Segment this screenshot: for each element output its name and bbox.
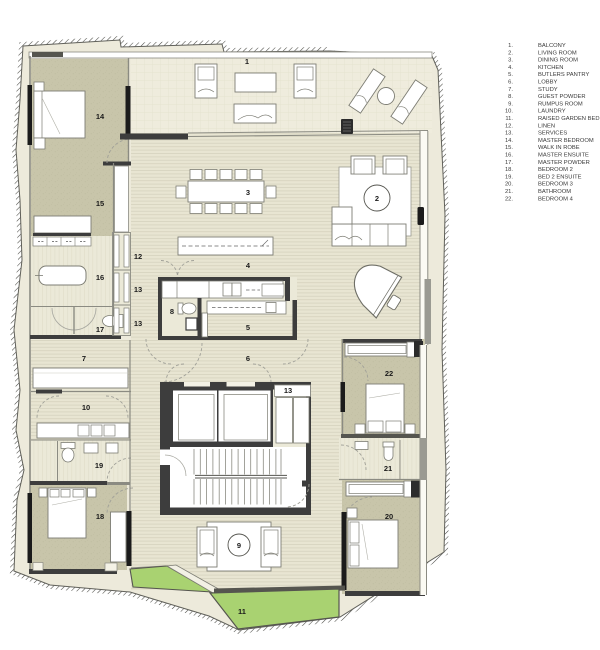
svg-text:13.: 13. [505, 131, 513, 137]
svg-text:17: 17 [96, 325, 104, 334]
svg-text:8.: 8. [508, 94, 513, 100]
svg-text:WALK IN ROBE: WALK IN ROBE [538, 145, 580, 151]
svg-text:4.: 4. [508, 65, 513, 71]
svg-text:SERVICES: SERVICES [538, 131, 567, 137]
svg-text:21: 21 [384, 464, 392, 473]
svg-text:LIVING ROOM: LIVING ROOM [538, 50, 577, 56]
svg-text:LINEN: LINEN [538, 123, 555, 129]
svg-text:BEDROOM 2: BEDROOM 2 [538, 167, 573, 173]
svg-text:13: 13 [284, 386, 292, 395]
svg-text:KITCHEN: KITCHEN [538, 65, 563, 71]
svg-text:12.: 12. [505, 123, 513, 129]
svg-text:BEDROOM 4: BEDROOM 4 [538, 196, 574, 202]
svg-text:2: 2 [375, 194, 379, 203]
svg-text:14: 14 [96, 112, 105, 121]
svg-text:9: 9 [237, 541, 241, 550]
svg-text:22.: 22. [505, 196, 513, 202]
svg-text:BALCONY: BALCONY [538, 43, 566, 49]
svg-text:16: 16 [96, 273, 104, 282]
svg-text:6.: 6. [508, 80, 513, 86]
svg-text:5.: 5. [508, 72, 513, 78]
svg-text:15: 15 [96, 199, 104, 208]
svg-text:12: 12 [134, 252, 142, 261]
svg-text:16.: 16. [505, 153, 513, 159]
svg-text:9.: 9. [508, 101, 513, 107]
svg-text:10.: 10. [505, 109, 513, 115]
svg-text:19.: 19. [505, 174, 513, 180]
svg-text:GUEST POWDER: GUEST POWDER [538, 94, 586, 100]
svg-text:7.: 7. [508, 87, 513, 93]
svg-text:6: 6 [246, 354, 250, 363]
svg-text:20: 20 [385, 512, 393, 521]
svg-text:1.: 1. [508, 43, 513, 49]
svg-text:BUTLERS PANTRY: BUTLERS PANTRY [538, 72, 589, 78]
svg-text:RUMPUS ROOM: RUMPUS ROOM [538, 101, 583, 107]
svg-text:DINING ROOM: DINING ROOM [538, 58, 578, 64]
svg-text:18.: 18. [505, 167, 513, 173]
svg-text:3.: 3. [508, 58, 513, 64]
svg-text:BEDROOM 3: BEDROOM 3 [538, 182, 573, 188]
svg-text:13: 13 [134, 319, 142, 328]
svg-text:5: 5 [246, 323, 250, 332]
svg-text:11.: 11. [505, 116, 513, 122]
svg-text:19: 19 [95, 461, 103, 470]
svg-text:13: 13 [134, 285, 142, 294]
svg-text:MASTER BEDROOM: MASTER BEDROOM [538, 138, 594, 144]
svg-text:MASTER ENSUITE: MASTER ENSUITE [538, 153, 589, 159]
svg-text:22: 22 [385, 369, 393, 378]
svg-text:7: 7 [82, 354, 86, 363]
svg-text:BATHROOM: BATHROOM [538, 189, 571, 195]
svg-text:2.: 2. [508, 50, 513, 56]
svg-text:21.: 21. [505, 189, 513, 195]
svg-text:LOBBY: LOBBY [538, 80, 557, 86]
svg-text:17.: 17. [505, 160, 513, 166]
svg-text:LAUNDRY: LAUNDRY [538, 109, 566, 115]
svg-text:14.: 14. [505, 138, 513, 144]
svg-text:8: 8 [170, 307, 174, 316]
svg-text:15.: 15. [505, 145, 513, 151]
svg-text:20.: 20. [505, 182, 513, 188]
svg-text:3: 3 [246, 188, 250, 197]
svg-text:18: 18 [96, 512, 104, 521]
svg-text:10: 10 [82, 403, 90, 412]
svg-text:STUDY: STUDY [538, 87, 558, 93]
svg-text:RAISED GARDEN BED: RAISED GARDEN BED [538, 116, 600, 122]
svg-text:1: 1 [245, 57, 249, 66]
svg-text:MASTER POWDER: MASTER POWDER [538, 160, 590, 166]
svg-text:11: 11 [238, 607, 246, 616]
svg-text:BED 2 ENSUITE: BED 2 ENSUITE [538, 174, 582, 180]
